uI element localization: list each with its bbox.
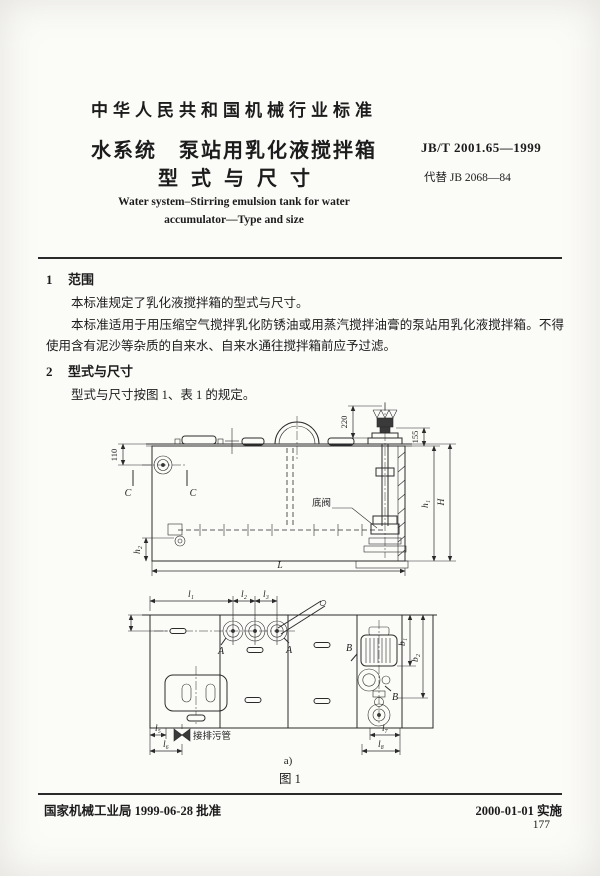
figure-1-drawing: C C	[90, 398, 490, 766]
section-1-paragraph-2: 本标准适用于用压缩空气搅拌乳化防锈油或用蒸汽搅拌油膏的泵站用乳化液搅拌箱。不得使…	[46, 315, 564, 357]
figure-1-caption: 图 1	[90, 768, 490, 787]
dim-label-b1: b₁	[398, 638, 408, 646]
replaces-note: 代替 JB 2068—84	[424, 169, 511, 185]
section-2-number: 2	[46, 364, 68, 380]
footer-divider	[38, 793, 562, 795]
dim-label-l6: l₆	[163, 740, 169, 750]
section-marker-a-right: A	[285, 645, 293, 656]
section-marker-c-left: C	[125, 488, 132, 499]
standard-document-page: 中华人民共和国机械行业标准 水系统 泵站用乳化液搅拌箱 型式与尺寸 JB/T 2…	[0, 0, 600, 876]
section-1-paragraph-1: 本标准规定了乳化液搅拌箱的型式与尺寸。	[46, 293, 564, 314]
dim-label-l8: l₈	[378, 740, 384, 750]
title-english-line2: accumulator—Type and size	[38, 214, 430, 226]
title-chinese-line1: 水系统 泵站用乳化液搅拌箱	[38, 134, 430, 163]
section-marker-b-right: B	[392, 692, 398, 703]
dim-label-L: L	[276, 561, 282, 571]
title-chinese-line2: 型式与尺寸	[38, 162, 430, 191]
dim-label-b2: b₂	[411, 653, 421, 662]
section-2-title: 型式与尺寸	[68, 364, 133, 379]
footer-approval: 国家机械工业局 1999-06-28 批准	[44, 800, 221, 819]
section-1-heading: 1范围	[46, 269, 94, 288]
dim-label-h1: h₁	[421, 500, 431, 508]
section-marker-a-left: A	[217, 646, 225, 657]
dim-label-l1: l₁	[188, 590, 194, 600]
dim-label-l2: l₂	[241, 590, 248, 600]
section-marker-c-right: C	[190, 488, 197, 499]
title-english-line1: Water system–Stirring emulsion tank for …	[38, 196, 430, 208]
dim-label-110: 110	[109, 449, 119, 461]
dim-label-l7: l₇	[382, 724, 389, 734]
drawing-side-elevation: C C	[109, 402, 456, 576]
section-1-number: 1	[46, 272, 68, 288]
dim-label-155: 155	[410, 431, 420, 444]
page-number: 177	[360, 819, 550, 831]
header-divider	[38, 257, 562, 259]
bottom-valve-label: 底阀	[312, 497, 331, 509]
section-2-heading: 2型式与尺寸	[46, 361, 133, 380]
standard-class-heading: 中华人民共和国机械行业标准	[38, 96, 430, 121]
figure-sub-label: a)	[284, 755, 293, 766]
dim-label-220: 220	[339, 416, 349, 429]
drawing-plan-view: A A l₁ l₂ l₃	[128, 590, 437, 766]
dim-label-h2: h₂	[133, 545, 143, 554]
standard-number: JB/T 2001.65—1999	[421, 140, 541, 156]
section-marker-b-left: B	[346, 643, 352, 654]
dim-label-H: H	[437, 497, 447, 506]
section-1-title: 范围	[68, 272, 94, 287]
footer-implementation: 2000-01-01 实施	[360, 800, 562, 819]
drain-pipe-label: 接排污管	[193, 730, 231, 742]
dim-label-l3: l₃	[263, 590, 269, 600]
dim-label-l5: l₅	[155, 724, 161, 734]
